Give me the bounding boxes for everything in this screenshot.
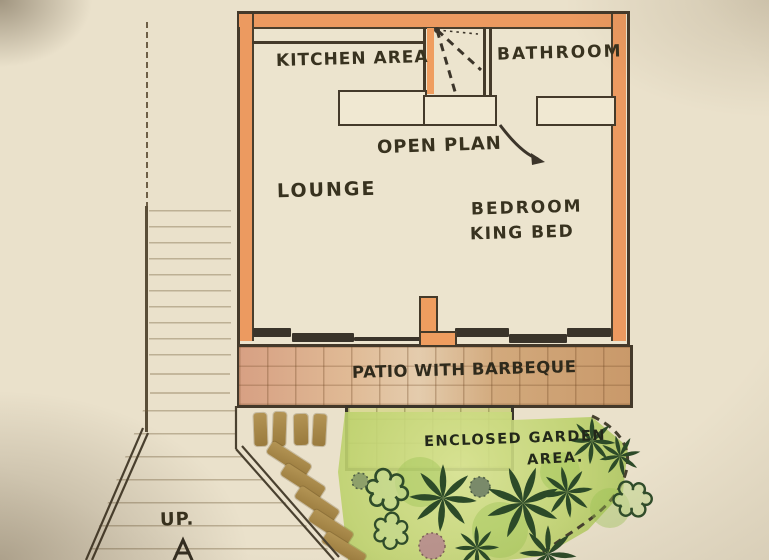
wall-right — [611, 14, 626, 341]
kitchen-label: KITCHEN AREA — [276, 47, 429, 71]
lounge-label: LOUNGE — [277, 178, 377, 203]
wall-top — [239, 14, 624, 29]
column-foot — [419, 331, 457, 347]
bathroom-bottom-wall — [536, 96, 616, 126]
floor-plan-sketch: KITCHEN AREA BATHROOM OPEN PLAN LOUNGE B… — [0, 0, 769, 560]
walkway-hatch-line — [150, 373, 230, 375]
king-bed-label: KING BED — [470, 222, 575, 245]
window-segment — [455, 328, 509, 337]
open-plan-label: OPEN PLAN — [377, 133, 502, 158]
stepping-stone — [253, 413, 267, 446]
bathroom-label: BATHROOM — [497, 41, 623, 64]
kitchen-counter-edge — [252, 41, 425, 44]
bedroom-label: BEDROOM — [471, 197, 583, 220]
walkway-left-edge-dashed — [146, 22, 148, 208]
walkway-hatch-line — [150, 392, 230, 394]
bathroom-wall-left — [489, 27, 492, 95]
up-label: UP. — [160, 509, 195, 531]
wall-sill-line — [354, 337, 420, 341]
window-segment — [292, 333, 354, 342]
walkway-left-edge — [145, 206, 148, 432]
walkway-steps-hatching — [149, 210, 231, 362]
stepping-stone — [312, 414, 327, 447]
window-segment — [509, 334, 567, 343]
kitchen-island-counter-right — [423, 95, 497, 126]
wall-left — [240, 14, 254, 341]
closet-wall-right — [483, 27, 486, 95]
garden-area-label: AREA. — [527, 450, 585, 469]
stepping-stone — [294, 414, 309, 445]
window-segment — [253, 328, 291, 337]
window-segment — [567, 328, 611, 337]
kitchen-island-counter — [338, 90, 427, 126]
